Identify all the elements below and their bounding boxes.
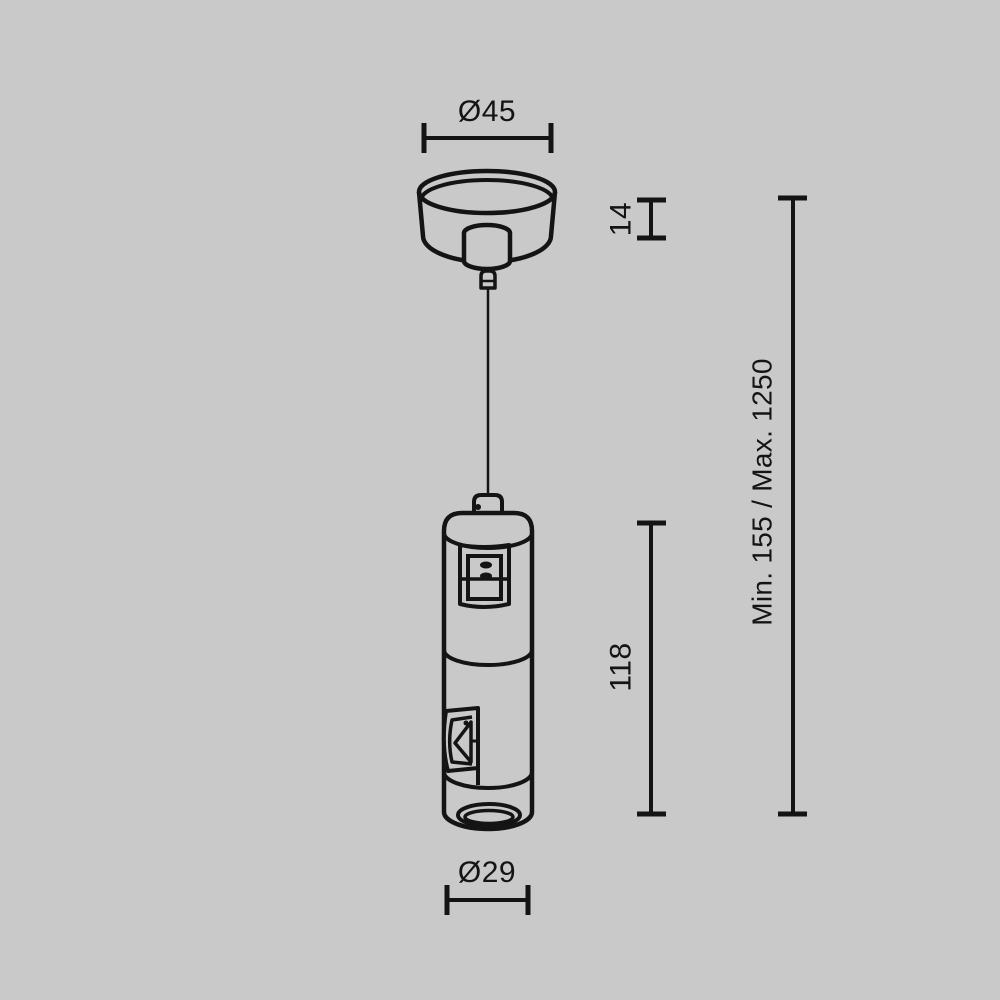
- connector-slot-dot-2: [480, 573, 492, 580]
- body-connector-recess: [460, 545, 509, 607]
- canopy-hub-cylinder: [464, 225, 510, 269]
- connector-slot-dot-1: [480, 562, 492, 569]
- pendant-body: [444, 495, 532, 829]
- canopy-wire-gripper: [481, 271, 495, 288]
- cap-setscrew-dot: [475, 504, 481, 510]
- suspension-range-label: Min. 155 / Max. 1250: [747, 358, 778, 625]
- body-diameter-label: Ø29: [458, 856, 516, 889]
- dimension-drawing-canvas: Ø45 14 Min. 155 / Max. 1250 118 Ø29: [0, 0, 1000, 1000]
- canopy-height-label: 14: [605, 202, 638, 236]
- technical-drawing-page: Ø45 14 Min. 155 / Max. 1250 118 Ø29: [0, 0, 1000, 1000]
- lock-pivot-dot: [464, 721, 469, 726]
- canopy-diameter-label: Ø45: [458, 95, 516, 128]
- body-height-label: 118: [605, 642, 638, 691]
